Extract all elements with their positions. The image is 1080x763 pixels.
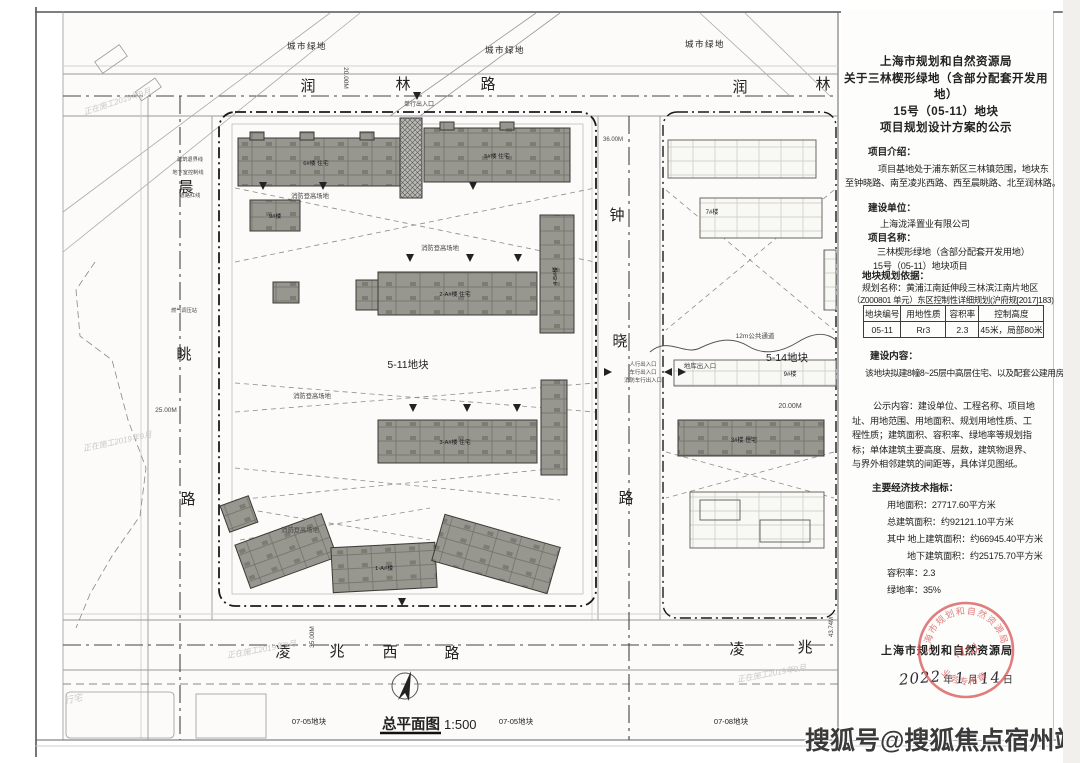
setback-line-label: 建筑退界线 [177, 155, 203, 163]
road-name-lingzhaoxi: 兆 [329, 643, 344, 660]
dimension-35m: 35.00M [309, 626, 316, 648]
green-area-label: 城市绿地 [685, 39, 725, 49]
announcement-title: 上海市规划和自然资源局 关于三林楔形绿地（含部分配套开发用地） 15号（05-1… [841, 54, 1051, 137]
road-redline-label: 道路红线 [180, 191, 201, 199]
table-cell-land-use: Rr3 [901, 322, 946, 338]
project-name-line: 三林楔形绿地（含部分配套开发用地） [877, 244, 1030, 258]
section-heading-indicators: 主要经济技术指标： [872, 480, 958, 494]
road-name-lingzhaoxi: 西 [382, 644, 397, 661]
building-label: 9#楼 [784, 370, 797, 378]
green-area-label: 城市绿地 [287, 41, 327, 51]
section-heading-project: 项目名称： [868, 230, 916, 244]
table-cell-height: 45米，局部80米 [979, 322, 1044, 338]
title-line: 项目规划设计方案的公示 [841, 120, 1051, 137]
intro-text-line: 至钟晓路、南至凌兆西路、西至晨眺路、北至润林路。 [845, 175, 1061, 189]
plan-title: 总平面图 [382, 715, 440, 733]
indicators-list: 用地面积：27717.60平方米 总建筑面积：约92121.10平方米 其中 地… [887, 497, 1043, 599]
fire-area-label: 消防登高场地 [291, 191, 329, 200]
building-label: 1-A#楼 [375, 564, 393, 572]
title-line: 15号（05-11）地块 [841, 104, 1051, 121]
official-red-stamp: 上海市规划和自然资源局 （15） 业务专用章 [902, 586, 1030, 718]
plan-scale: 1:500 [444, 717, 477, 732]
indicator-line: 地下建筑面积：约25175.70平方米 [887, 548, 1043, 565]
building-label: 2-A#楼 住宅 [439, 290, 470, 298]
title-line: 关于三林楔形绿地（含部分配套开发用地） [841, 71, 1051, 104]
table-cell-plot-no: 05-11 [864, 322, 901, 338]
pedestrian-entry-label: 人行出入口 [630, 360, 657, 368]
publicity-line: 公示内容：建设单位、工程名称、项目地 [852, 399, 1035, 414]
dimension-20m: 20.00M [778, 403, 802, 410]
publicity-line: 标；单体建筑主要高度、层数，建筑物退界、 [852, 443, 1035, 458]
road-name-zhongxiao: 钟 [609, 207, 624, 224]
building-label: 3#楼 住宅 [731, 436, 757, 444]
svg-text:业务专用章: 业务专用章 [939, 660, 991, 692]
road-name-lingzhao: 凌 [729, 641, 744, 658]
dimension-25m: 25.00M [155, 407, 177, 414]
public-passage-label: 12m公共通道 [736, 331, 775, 340]
building-label: 9#楼 [269, 212, 281, 220]
single-entry-label: 单行出入口 [404, 100, 434, 108]
road-name-lingzhao: 兆 [797, 639, 812, 656]
table-header-cell: 控制高度 [979, 306, 1044, 322]
dimension-36m: 36.00M [603, 137, 623, 143]
content-text-line: 该地块拟建8幢8~25层中高层住宅、以及配套公建用房。 [865, 366, 1072, 379]
publicity-line: 与界外相邻建筑的间距等，具体详见图纸。 [852, 457, 1035, 472]
road-name-runlin: 润 [300, 78, 315, 95]
table-header-cell: 用地性质 [901, 306, 946, 322]
plot-label-07-05: 07-05地块 [499, 716, 534, 726]
title-line: 上海市规划和自然资源局 [841, 54, 1051, 71]
fire-entry-label: 消防车行出入口 [624, 376, 662, 384]
green-area-label: 城市绿地 [485, 45, 525, 55]
dimension-20m: 20.00M [342, 67, 349, 89]
road-name-runlin: 润 [732, 79, 747, 96]
vehicle-entry-label: 车行出入口 [630, 368, 657, 376]
fire-area-label: 消防登高场地 [293, 391, 331, 400]
indicator-line: 容积率：2.3 [887, 565, 1043, 582]
builder-name: 上海泷泽置业有限公司 [880, 216, 970, 230]
plot-label-07-08: 07-08地块 [714, 716, 749, 726]
publicity-line: 址、用地范围、用地面积、规划用地性质、工 [852, 414, 1035, 429]
garage-entry-label: 地库出入口 [684, 361, 717, 370]
indicator-line: 用地面积：27717.60平方米 [887, 497, 1043, 514]
indicator-line: 其中 地上建筑面积：约66945.40平方米 [887, 531, 1043, 548]
sohu-watermark: 搜狐号@搜狐焦点宿州站 [805, 721, 1079, 757]
publicity-line: 程性质；建筑面积、容积率、绿地率等规划指 [852, 428, 1035, 443]
building-label: 5#楼 住宅 [484, 152, 510, 160]
section-heading-intro: 项目介绍： [868, 144, 916, 158]
stamp-bottom-text: 业务专用章 [939, 660, 991, 692]
basis-text-line: 规划名称：黄浦江南延伸段三林滨江南片地区 [862, 281, 1038, 294]
road-name-zhongxiao: 路 [618, 490, 633, 507]
road-name-runlin: 林 [395, 76, 410, 93]
building-label: 6#楼 住宅 [303, 159, 329, 167]
table-cell-far: 2.3 [946, 322, 979, 338]
building-label: 3-A#楼 住宅 [439, 438, 470, 446]
fire-area-label: 消防登高场地 [281, 525, 319, 534]
road-name-chentiao: 路 [180, 491, 195, 508]
building-label: 4-B#楼 [551, 267, 559, 285]
dimension-43m: 43.74M [829, 617, 835, 637]
road-name-chentiao: 眺 [176, 346, 191, 363]
road-name-lingzhaoxi: 路 [444, 645, 459, 662]
road-name-runlin: 路 [480, 76, 495, 93]
building-label: 7#楼 [706, 208, 719, 216]
publicity-paragraph: 公示内容：建设单位、工程名称、项目地 址、用地范围、用地面积、规划用地性质、工 … [852, 399, 1035, 472]
table-header-cell: 地块编号 [864, 306, 901, 322]
table-header-cell: 容积率 [946, 306, 979, 322]
road-name-runlin: 林 [815, 76, 830, 93]
gas-station-label: 燃气调压站 [171, 306, 197, 314]
basement-line-label: 地下室控制线 [172, 168, 203, 176]
plot-label-5-14: 5-14地块 [766, 351, 809, 364]
indicator-line: 总建筑面积：约92121.10平方米 [887, 514, 1043, 531]
plot-label-5-11: 5-11地块 [387, 358, 429, 371]
stamp-center-text: （15） [945, 640, 987, 662]
section-heading-builder: 建设单位： [868, 200, 916, 214]
plot-label-07-05: 07-05地块 [292, 716, 327, 726]
intro-text-line: 项目基地处于浦东新区三林镇范围，地块东 [878, 161, 1049, 175]
section-heading-basis: 地块规划依据： [862, 268, 929, 282]
road-name-zhongxiao: 晓 [612, 333, 627, 350]
section-heading-content: 建设内容： [870, 348, 918, 362]
scanned-planning-announcement-page: 城市绿地 城市绿地 城市绿地 润 林 路 润 林 晨 眺 路 钟 晓 路 凌 兆… [0, 0, 1080, 763]
fire-area-label: 消防登高场地 [421, 243, 459, 252]
plot-index-table: 地块编号 用地性质 容积率 控制高度 05-11 Rr3 2.3 45米，局部8… [863, 305, 1044, 338]
